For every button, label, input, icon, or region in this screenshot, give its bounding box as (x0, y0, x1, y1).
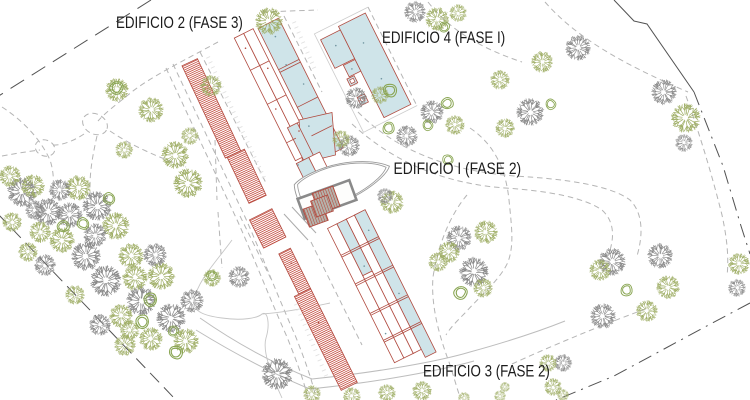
svg-text:EDIFICIO 4 (FASE I): EDIFICIO 4 (FASE I) (382, 30, 505, 47)
svg-text:EDIFICIO 2 (FASE 3): EDIFICIO 2 (FASE 3) (116, 15, 243, 32)
svg-text:EDIFICIO I (FASE 2): EDIFICIO I (FASE 2) (394, 160, 522, 178)
svg-text:EDIFICIO 3 (FASE 2): EDIFICIO 3 (FASE 2) (423, 363, 550, 380)
